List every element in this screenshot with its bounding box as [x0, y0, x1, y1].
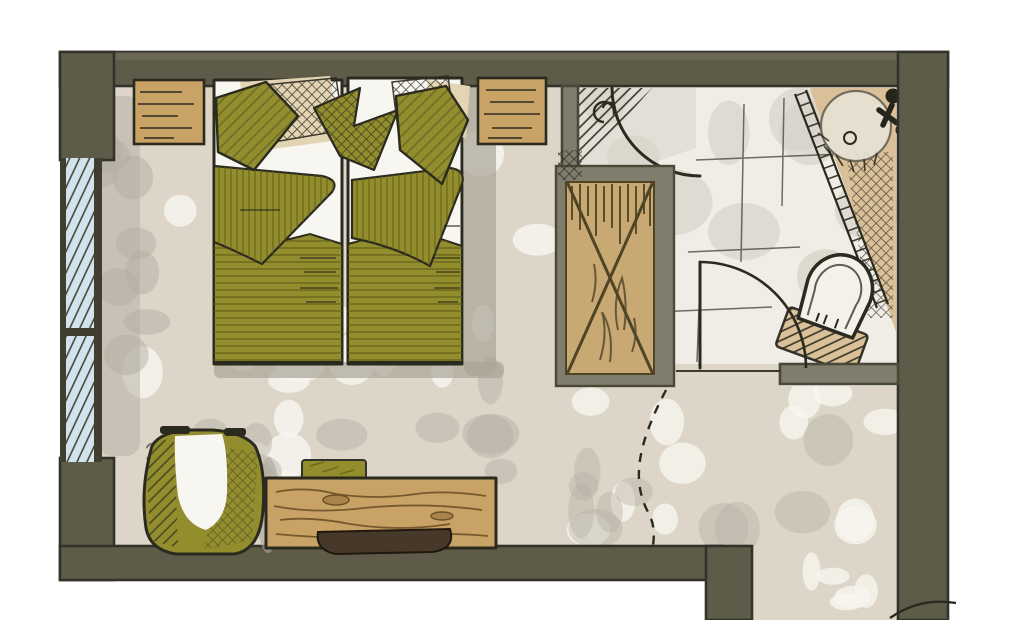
window-mullion: [62, 328, 100, 336]
floor-blotch: [650, 399, 684, 446]
partition-end-hatch: [558, 150, 582, 180]
armchair-clip-right: [224, 428, 246, 436]
floor-blotch: [779, 405, 808, 439]
wall-entry-jamb: [706, 546, 752, 620]
duvet-left: [214, 166, 342, 362]
window-glass-hatch: [66, 158, 94, 462]
window: [60, 158, 102, 462]
floor-blotch: [834, 586, 870, 609]
floor-blotch: [615, 478, 653, 506]
duvet-left-streaks: [214, 232, 342, 362]
duvet-right: [348, 168, 463, 362]
floor-blotch: [708, 203, 780, 260]
floor-blotch: [164, 195, 197, 227]
floor-blotch: [803, 414, 853, 465]
floor-blotch: [415, 413, 459, 443]
floor-blotch: [513, 224, 563, 256]
nightstand-right: [478, 78, 546, 144]
desk-knot-2: [431, 512, 453, 520]
floor-blotch: [569, 472, 599, 500]
floor-plan-canvas: [0, 0, 1024, 620]
floor-blotch: [462, 414, 519, 454]
floor-blotch: [659, 443, 705, 484]
floor-blotch: [803, 552, 821, 590]
floor-blotch: [316, 419, 367, 451]
tray: [318, 529, 452, 554]
floor-blotch: [652, 504, 678, 535]
floor-blotch: [274, 400, 304, 438]
armchair-clip-left: [160, 426, 190, 434]
wall-top-highlight: [60, 52, 948, 60]
armchair-left-hatch: [146, 438, 178, 548]
floor-blotch: [569, 509, 623, 548]
wardrobe: [556, 150, 674, 386]
desk-knot-1: [323, 495, 349, 505]
floor-blotch: [572, 387, 610, 416]
door-threshold-floor: [674, 364, 780, 388]
floor-blotch: [816, 568, 849, 585]
wall-right: [898, 52, 948, 620]
floor-plan-sketch: [0, 0, 1024, 620]
nightstand-left: [134, 80, 204, 144]
floor-blotch: [775, 491, 830, 534]
wall-left-upper: [60, 52, 114, 160]
floor-blotch: [834, 506, 877, 544]
wall-bath-south: [780, 364, 898, 384]
